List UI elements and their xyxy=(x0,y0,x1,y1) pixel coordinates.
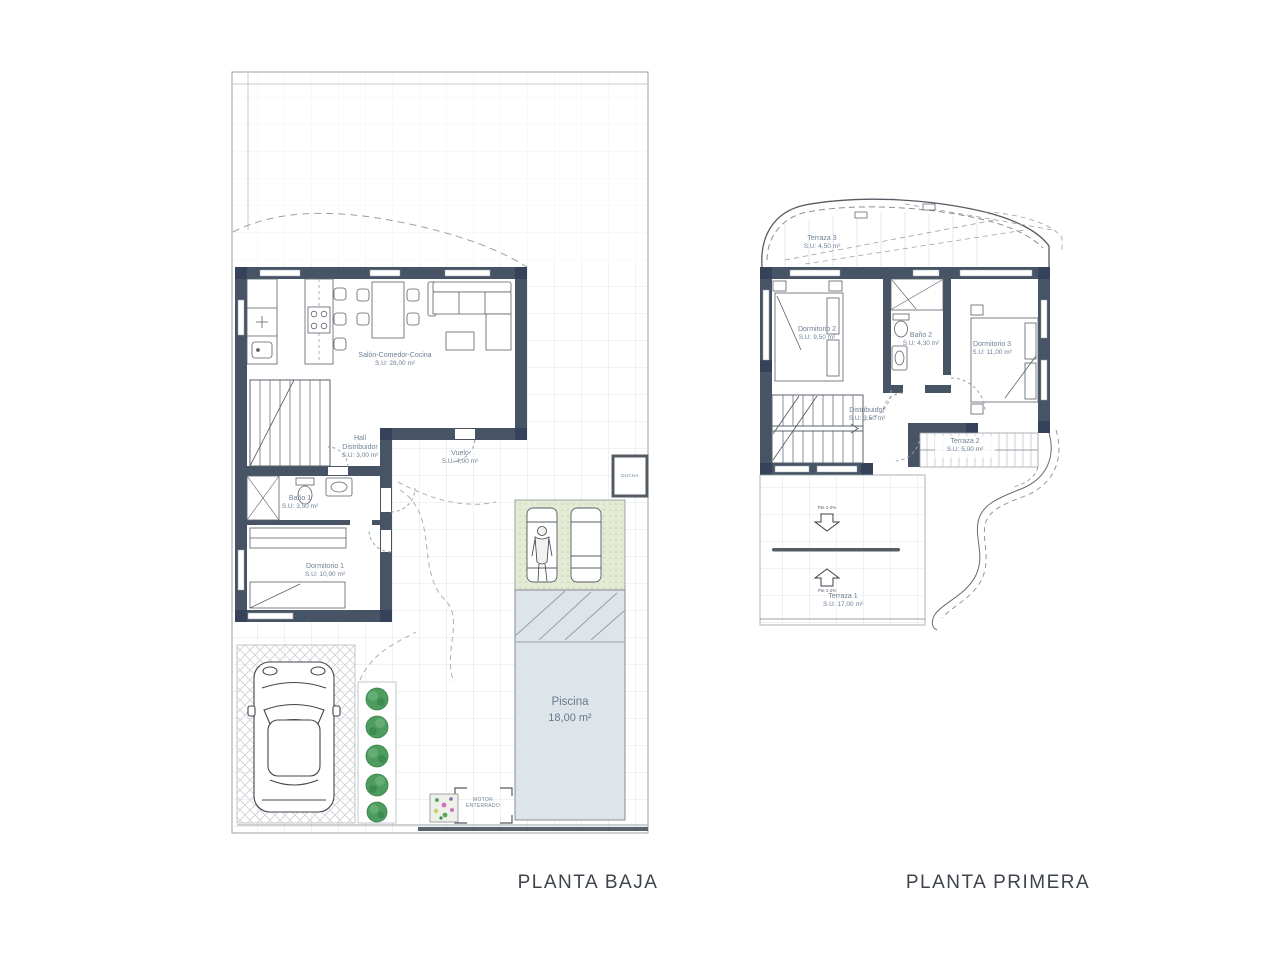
planting-strip xyxy=(358,682,396,823)
flower-bed xyxy=(430,794,458,822)
stairs xyxy=(772,395,863,463)
bush xyxy=(366,688,388,710)
first-floor-drawing xyxy=(755,190,1070,640)
car-top-view xyxy=(248,662,340,812)
ground-floor-drawing xyxy=(230,70,650,835)
pool xyxy=(515,590,625,820)
bush xyxy=(367,802,387,822)
outdoor-shower xyxy=(613,456,647,496)
bathroom-2-fixtures xyxy=(891,279,943,370)
first-floor-plan: Terraza 3 S.U: 4,50 m² Dormitorio 2 S.U:… xyxy=(755,190,1070,640)
bush xyxy=(366,745,388,767)
first-floor-title: PLANTA PRIMERA xyxy=(838,872,1158,894)
sun-lounger xyxy=(571,508,601,582)
bush xyxy=(366,774,388,796)
ground-floor-title: PLANTA BAJA xyxy=(428,872,748,894)
roof-terrace-outline xyxy=(762,199,1062,267)
bedroom-3-furniture xyxy=(971,305,1038,414)
ground-floor-plan: Salón-Comedor-Cocina S.U: 28,00 m² Hall … xyxy=(230,70,650,835)
stairs xyxy=(250,380,330,466)
blueprint-canvas: Salón-Comedor-Cocina S.U: 28,00 m² Hall … xyxy=(0,0,1280,960)
terraza-1 xyxy=(760,475,925,625)
bedroom-2-furniture xyxy=(773,281,843,381)
bush xyxy=(366,716,388,738)
drain-gutter xyxy=(772,548,900,552)
carport xyxy=(237,645,355,823)
terraza-2 xyxy=(920,433,1038,467)
pool-deck xyxy=(515,500,625,590)
